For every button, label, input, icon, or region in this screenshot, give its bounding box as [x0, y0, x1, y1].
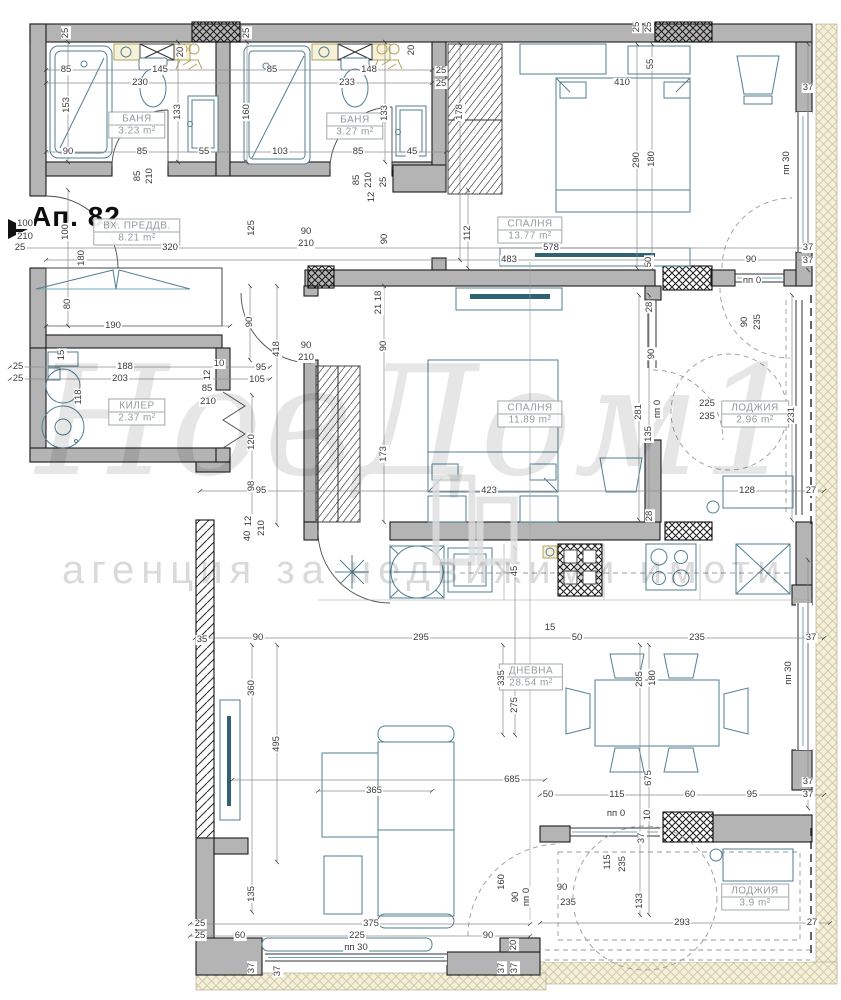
- dimension-label: 235: [698, 412, 716, 422]
- room-name: ЛОДЖИЯ: [722, 885, 788, 897]
- dimension-label: 90: [482, 931, 495, 941]
- dimension-label: 100: [61, 223, 71, 241]
- dimension-label: 115: [608, 790, 625, 800]
- dimension-label: 410: [613, 78, 631, 88]
- dimension-label: 275: [510, 696, 520, 714]
- dimension-label: 145: [151, 65, 169, 75]
- dimension-label: 90: [511, 891, 521, 904]
- room-name: ДНЕВНА: [500, 665, 562, 677]
- dimension-label: 12: [203, 369, 213, 382]
- dimension-label: 178: [455, 103, 465, 121]
- dimension-label: 90: [647, 348, 657, 361]
- dimension-label: 90: [380, 233, 390, 246]
- room-name: БАНЯ: [327, 114, 382, 126]
- room-area: 2.37 m²: [109, 412, 164, 425]
- room-name: БАНЯ: [109, 113, 164, 125]
- room-label: БАНЯ3.23 m²: [108, 112, 165, 139]
- dimension-label: 365: [365, 786, 383, 796]
- dimension-label: 95: [255, 486, 268, 496]
- dimension-label: 25: [194, 931, 207, 941]
- dimension-label: пп 30: [343, 943, 369, 953]
- dimension-label: 160: [242, 103, 252, 121]
- dimension-label: 25: [632, 21, 642, 34]
- floor-plan-page: НовДом1 агенция за недвижими имоти Ап. 8…: [0, 0, 841, 1000]
- dimension-label: 25: [14, 243, 27, 253]
- dimension-label: 210: [364, 171, 374, 189]
- dimension-label: 190: [104, 321, 122, 331]
- dimension-label: 85: [133, 170, 143, 183]
- dimension-label: 128: [738, 486, 756, 496]
- dimension-label: 148: [360, 65, 378, 75]
- dimension-label: 95: [255, 363, 268, 373]
- dimension-label: 20: [176, 46, 186, 59]
- dimension-label: 90: [745, 255, 758, 265]
- room-area: 3.27 m²: [327, 126, 382, 139]
- dimension-label: 85: [352, 174, 362, 187]
- room-label: ЛОДЖИЯ2.96 m²: [721, 401, 789, 428]
- dimension-label: 120: [247, 433, 257, 451]
- dimension-label: 133: [635, 892, 645, 910]
- dimension-label: 225: [698, 399, 716, 409]
- dimension-label: 90: [300, 341, 313, 351]
- dimension-label: 85: [136, 147, 149, 157]
- dimension-label: 210: [16, 232, 34, 242]
- dimension-label: 105: [248, 375, 266, 385]
- dimension-label: 210: [145, 167, 155, 185]
- dimension-label: 10: [213, 359, 226, 369]
- dimension-label: 90: [245, 316, 255, 329]
- dimension-label: 210: [297, 239, 315, 249]
- dimension-label: 25: [435, 66, 448, 76]
- dimension-label: 28: [645, 510, 655, 523]
- room-area: 11.89 m²: [498, 414, 561, 427]
- dimension-label: 100: [16, 219, 34, 229]
- dimension-label: 18: [374, 290, 384, 303]
- dimension-label: 118: [74, 388, 84, 405]
- dimension-label: 103: [271, 147, 289, 157]
- dimension-label: 173: [379, 445, 389, 463]
- dimension-label: 50: [542, 790, 555, 800]
- dimension-label: 125: [247, 219, 257, 237]
- dimension-label: 90: [300, 227, 313, 237]
- room-label: СПАЛНЯ13.77 m²: [497, 217, 562, 244]
- dimension-label: 20: [407, 44, 417, 57]
- dimension-label: 25: [644, 21, 654, 34]
- dimension-label: 37: [802, 256, 815, 266]
- dimension-label: 95: [746, 790, 759, 800]
- dimension-label: 210: [257, 519, 267, 537]
- room-label: ЛОДЖИЯ3.9 m²: [721, 884, 789, 911]
- dimension-label: 28: [645, 301, 655, 314]
- dimension-label: 135: [644, 425, 654, 443]
- dimension-label: 225: [348, 931, 366, 941]
- dimension-label: 40: [243, 530, 253, 543]
- dimension-label: 230: [131, 78, 149, 88]
- dimension-label: 235: [688, 633, 706, 643]
- dimension-label: пп 30: [784, 660, 794, 686]
- dimension-label: 80: [63, 298, 73, 311]
- room-name: ЛОДЖИЯ: [722, 402, 788, 414]
- room-label: КИЛЕР2.37 m²: [108, 399, 165, 426]
- dimension-label: 12: [367, 191, 377, 204]
- dimension-label: 37: [510, 962, 520, 975]
- dimension-label: 45: [406, 147, 419, 157]
- dimension-label: 85: [201, 384, 214, 394]
- dimension-label: 153: [62, 96, 72, 114]
- dimension-label: 15: [544, 623, 557, 633]
- dimension-label: 210: [297, 353, 315, 363]
- dimension-label: пп 0: [742, 276, 762, 286]
- room-area: 2.96 m²: [722, 414, 788, 427]
- dimension-label: 60: [234, 931, 247, 941]
- dimension-label: 112: [463, 224, 473, 241]
- room-label: БАНЯ3.27 m²: [326, 113, 383, 140]
- dimension-label: 90: [740, 316, 750, 329]
- dimension-label: 37: [802, 83, 815, 93]
- dimension-label: 160: [497, 873, 507, 891]
- dimension-label: 675: [644, 769, 654, 787]
- dimension-label: пп 30: [782, 150, 792, 176]
- dimension-label: 37: [805, 633, 818, 643]
- dimension-label: 180: [647, 150, 657, 168]
- dimension-label: 423: [480, 486, 498, 496]
- dimension-label: 360: [247, 679, 257, 697]
- dimension-label: 188: [116, 362, 134, 372]
- dimension-label: 45: [510, 565, 520, 578]
- dimension-label: 25: [242, 27, 252, 40]
- dimension-label: 233: [338, 78, 356, 88]
- dimension-label: 85: [266, 65, 279, 75]
- dimension-label: 21: [374, 303, 384, 316]
- dimension-label: 55: [198, 147, 211, 157]
- dimension-label: 285: [635, 670, 645, 688]
- dimension-label: 90: [556, 883, 569, 893]
- dimension-label: 12: [244, 515, 254, 528]
- dimension-label: 578: [542, 243, 560, 253]
- dimension-label: 290: [632, 151, 642, 169]
- dimension-label: 90: [379, 340, 389, 353]
- dimension-label: 15: [57, 349, 67, 362]
- dimension-label: 50: [571, 633, 584, 643]
- dimension-label: 495: [272, 735, 282, 753]
- dimension-label: 37: [247, 962, 257, 975]
- dimension-label: 133: [380, 104, 390, 122]
- dimension-label: 281: [634, 403, 644, 421]
- dimension-label: 27: [805, 486, 818, 496]
- room-name: КИЛЕР: [109, 400, 164, 412]
- dimension-label: 37: [802, 790, 815, 800]
- dimension-label: 25: [194, 919, 207, 929]
- room-label: ДНЕВНА28.54 m²: [499, 664, 563, 691]
- dimension-label: 210: [199, 397, 217, 407]
- dimension-label: 85: [60, 65, 73, 75]
- dimension-label: пп 0: [606, 809, 626, 819]
- dimension-label: 10: [643, 809, 653, 822]
- dimension-label: 35: [196, 635, 209, 645]
- dimension-label: 180: [648, 669, 658, 687]
- dimension-label: 37: [637, 832, 647, 845]
- dimension-label: 335: [497, 669, 507, 687]
- dimension-label: 685: [503, 775, 521, 785]
- dimension-label: пп 0: [522, 887, 532, 907]
- dimension-label: 55: [646, 58, 656, 71]
- dimension-label: 27: [806, 918, 819, 928]
- dimension-label: 25: [435, 79, 448, 89]
- dimension-label: 231: [787, 406, 797, 424]
- dimension-label: 25: [379, 176, 389, 189]
- dimension-label: 85: [352, 147, 365, 157]
- dimension-label: 135: [247, 885, 257, 903]
- room-area: 28.54 m²: [500, 677, 562, 690]
- dimension-label: 418: [272, 340, 282, 358]
- dimension-label: 235: [559, 898, 577, 908]
- dimension-label: 375: [362, 919, 380, 929]
- dimension-label: 235: [618, 855, 628, 873]
- dimension-label: 60: [684, 790, 697, 800]
- dimension-label: 293: [673, 918, 691, 928]
- labels-layer: БАНЯ3.23 m²БАНЯ3.27 m²ВХ. ПРЕДДВ.8.21 m²…: [0, 0, 841, 1000]
- room-label: СПАЛНЯ11.89 m²: [497, 401, 562, 428]
- room-name: СПАЛНЯ: [498, 402, 561, 414]
- room-area: 13.77 m²: [498, 230, 561, 243]
- dimension-label: 37: [802, 243, 815, 253]
- dimension-label: 20: [509, 939, 519, 952]
- dimension-label: 115: [603, 853, 613, 870]
- dimension-label: 203: [111, 374, 129, 384]
- dimension-label: 25: [61, 27, 71, 40]
- dimension-label: 25: [12, 374, 25, 384]
- dimension-label: 180: [77, 249, 87, 267]
- dimension-label: 483: [500, 255, 518, 265]
- dimension-label: 90: [252, 633, 265, 643]
- dimension-label: 37: [802, 777, 815, 787]
- dimension-label: пп 0: [653, 399, 663, 419]
- dimension-label: 90: [62, 147, 75, 157]
- dimension-label: 50: [644, 256, 654, 269]
- dimension-label: 235: [753, 313, 763, 331]
- room-name: СПАЛНЯ: [498, 218, 561, 230]
- room-area: 3.9 m²: [722, 897, 788, 910]
- room-area: 3.23 m²: [109, 125, 164, 138]
- room-name: ВХ. ПРЕДДВ.: [94, 220, 179, 232]
- dimension-label: 25: [12, 362, 25, 372]
- dimension-label: 37: [273, 965, 283, 978]
- dimension-label: 295: [412, 633, 430, 643]
- dimension-label: 133: [173, 103, 183, 121]
- dimension-label: 320: [161, 243, 179, 253]
- dimension-label: 37: [497, 962, 507, 975]
